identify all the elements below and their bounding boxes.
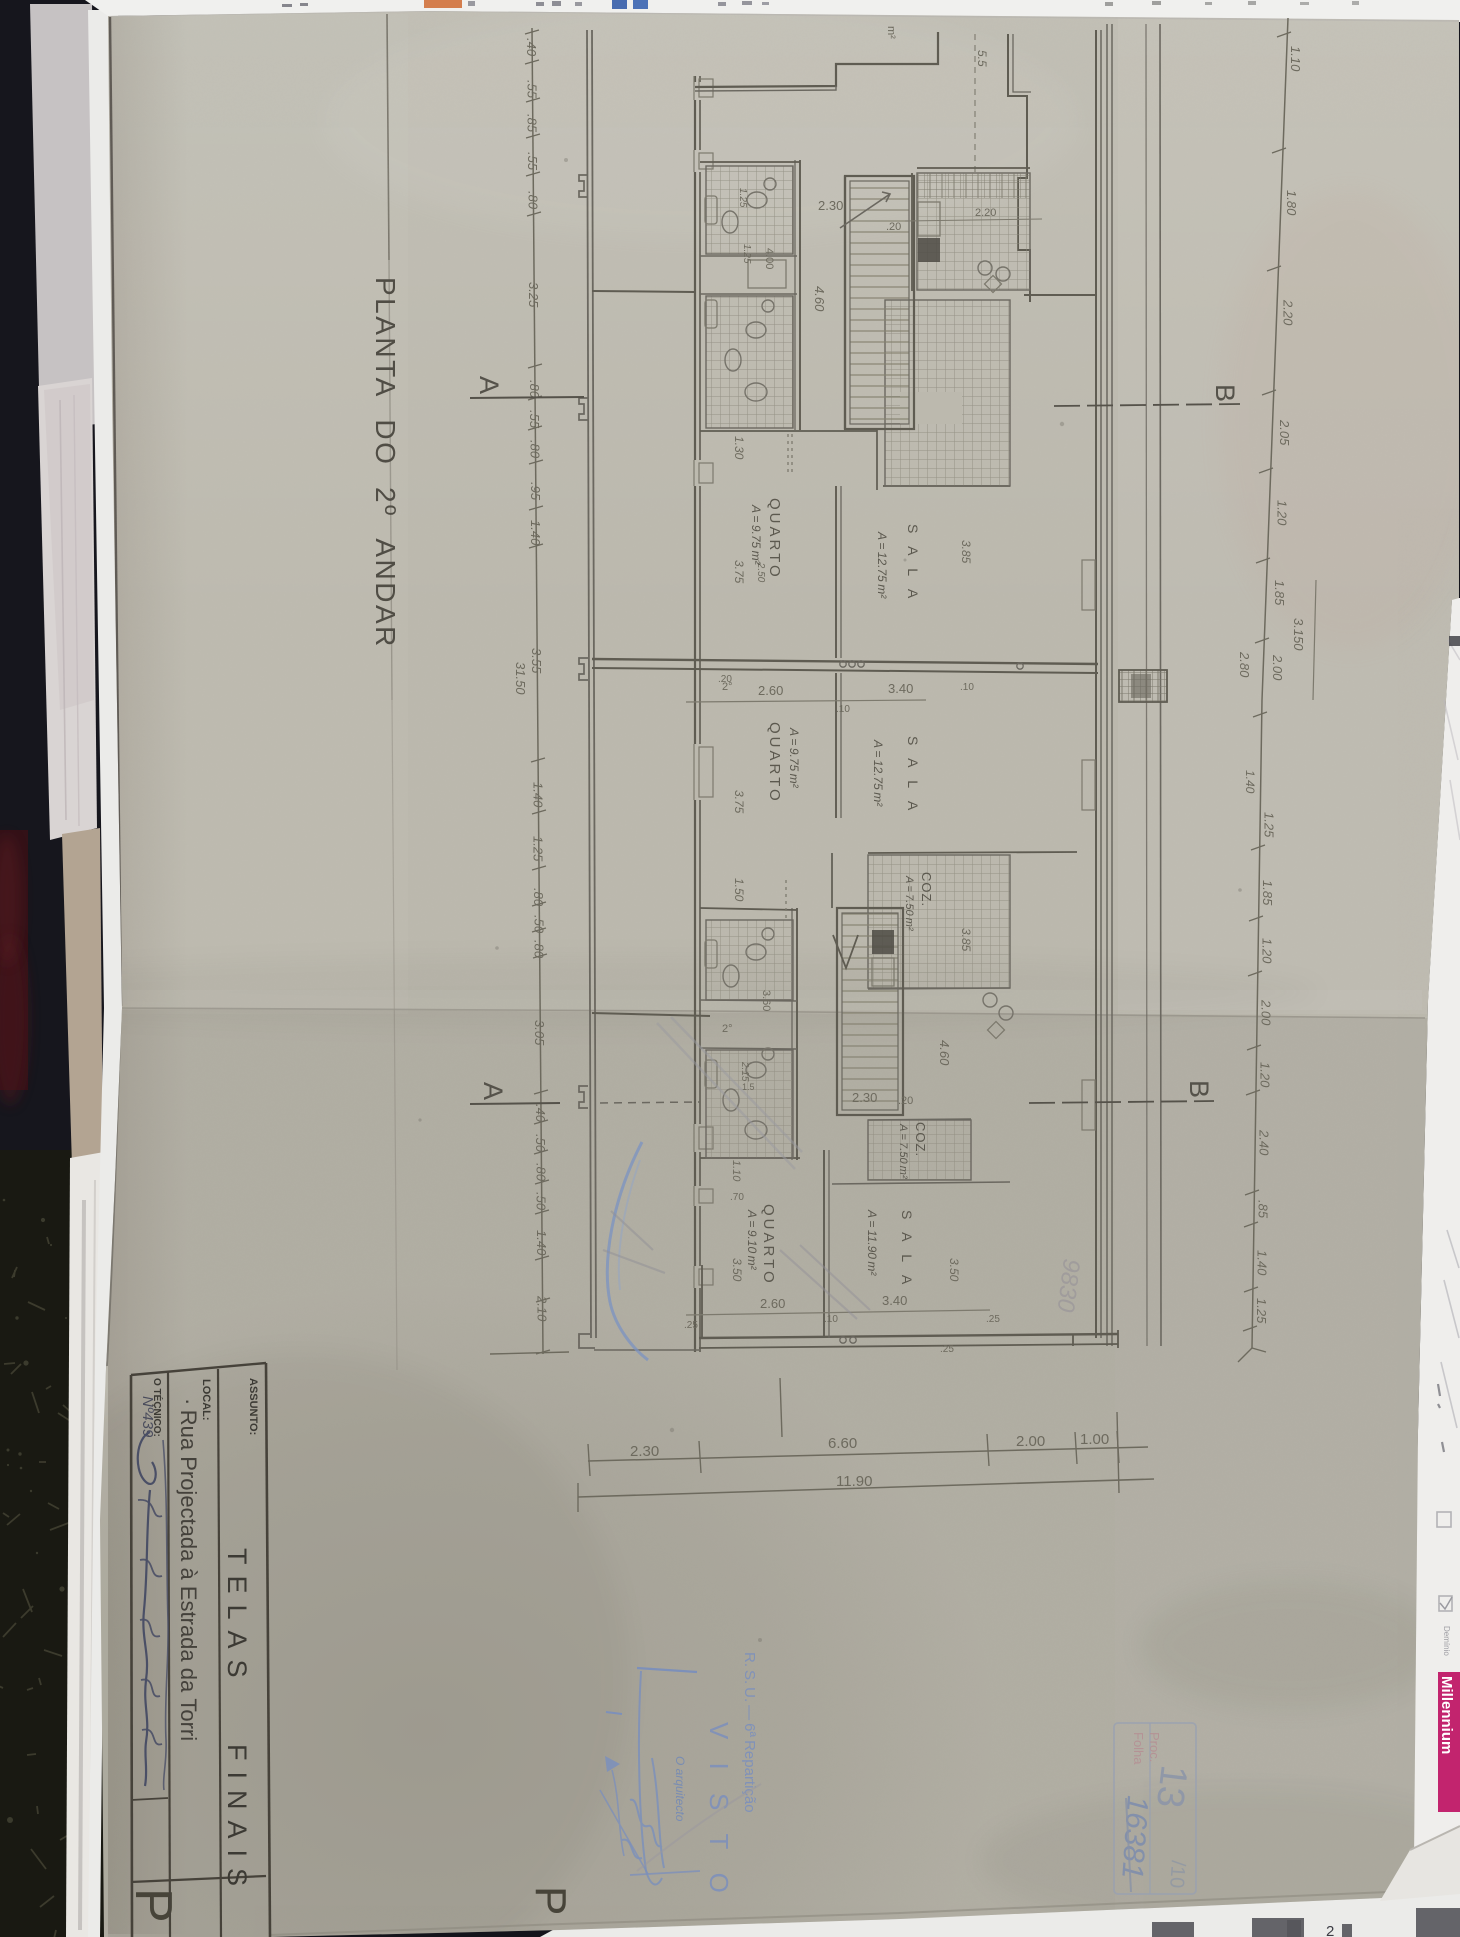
svg-text:3.150: 3.150 <box>1291 618 1306 651</box>
svg-text:PLANTA DO 2º ANDAR: PLANTA DO 2º ANDAR <box>370 277 401 649</box>
svg-text:3.40: 3.40 <box>888 681 913 696</box>
svg-text:A = 11.90 m²: A = 11.90 m² <box>865 1209 879 1276</box>
svg-text:31.50: 31.50 <box>513 662 528 695</box>
svg-text:2.05: 2.05 <box>1277 419 1292 446</box>
svg-text:3.50: 3.50 <box>730 1258 744 1282</box>
svg-text:1.40: 1.40 <box>1243 770 1257 794</box>
svg-text:1.10: 1.10 <box>1288 46 1303 72</box>
svg-text:2.00: 2.00 <box>1270 654 1285 681</box>
svg-text:2.30: 2.30 <box>818 198 843 213</box>
svg-text:.80: .80 <box>527 380 542 399</box>
svg-text:1.80: 1.80 <box>1284 190 1299 216</box>
svg-text:.85: .85 <box>525 114 540 133</box>
svg-text:.10: .10 <box>836 704 850 715</box>
svg-text:1.40: 1.40 <box>528 520 543 546</box>
svg-text:1.40: 1.40 <box>530 782 545 808</box>
svg-text:3.50: 3.50 <box>947 1258 961 1282</box>
svg-text:3.75: 3.75 <box>732 790 746 814</box>
svg-text:2: 2 <box>1326 1923 1334 1937</box>
svg-text:1.00: 1.00 <box>1080 1431 1109 1448</box>
svg-text:13: 13 <box>1148 1763 1195 1810</box>
svg-text:1.20: 1.20 <box>1275 500 1290 526</box>
svg-text:4.60: 4.60 <box>937 1040 952 1066</box>
svg-text:.50: .50 <box>533 1134 548 1153</box>
svg-text:.80: .80 <box>533 1163 548 1182</box>
svg-text:3.85: 3.85 <box>959 540 973 564</box>
svg-text:A = 7.50 m²: A = 7.50 m² <box>897 1123 909 1179</box>
svg-text:Demínio: Demínio <box>1442 1626 1451 1656</box>
svg-text:B: B <box>1184 1080 1214 1098</box>
svg-text:2.40: 2.40 <box>1256 1129 1271 1156</box>
svg-text:2.60: 2.60 <box>758 683 783 698</box>
svg-text:.20: .20 <box>886 221 901 233</box>
svg-text:Proc.: Proc. <box>1147 1732 1162 1762</box>
svg-text:3.60: 3.60 <box>760 990 772 1011</box>
svg-text:A = 9.10 m²: A = 9.10 m² <box>745 1209 759 1271</box>
svg-text:A = 12.75 m²: A = 12.75 m² <box>871 739 885 807</box>
svg-text:.50: .50 <box>534 1192 549 1211</box>
svg-text:.25: .25 <box>684 1320 698 1331</box>
svg-text:1.25: 1.25 <box>1261 812 1276 838</box>
svg-text:1.25: 1.25 <box>741 244 752 264</box>
svg-text:.55: .55 <box>527 410 542 429</box>
svg-text:.80: .80 <box>525 191 540 210</box>
svg-text:2.15: 2.15 <box>739 1061 750 1082</box>
svg-text:3.05: 3.05 <box>532 1020 547 1046</box>
svg-text:4.00: 4.00 <box>763 248 775 269</box>
svg-text:.85: .85 <box>1255 1200 1270 1219</box>
svg-text:1.85: 1.85 <box>1260 880 1275 906</box>
svg-text:11.90: 11.90 <box>836 1473 872 1490</box>
svg-text:TELAS FINAIS: TELAS FINAIS <box>222 1548 252 1897</box>
svg-text:S A L A: S A L A <box>905 736 921 815</box>
svg-text:QUARTO: QUARTO <box>760 1204 777 1286</box>
svg-text:A = 9.75 m²: A = 9.75 m² <box>749 504 763 566</box>
svg-text:Folha: Folha <box>1131 1732 1146 1765</box>
svg-text:6.60: 6.60 <box>828 1435 857 1452</box>
svg-text:/10: /10 <box>1165 1860 1189 1889</box>
svg-text:COZ.: COZ. <box>913 1122 928 1157</box>
svg-text:2°: 2° <box>722 681 733 693</box>
svg-text:.40: .40 <box>524 38 539 57</box>
svg-text:.95: .95 <box>528 482 543 501</box>
svg-text:R. S. U. — 6ª Repartição: R. S. U. — 6ª Repartição <box>741 1652 758 1813</box>
svg-text:2.30: 2.30 <box>852 1090 877 1105</box>
svg-text:1.10: 1.10 <box>730 1160 742 1182</box>
svg-text:2.00: 2.00 <box>1258 999 1273 1026</box>
svg-text:3.40: 3.40 <box>882 1293 907 1308</box>
svg-text:1.30: 1.30 <box>732 436 746 460</box>
svg-text:.55: .55 <box>524 80 539 99</box>
svg-text:4.60: 4.60 <box>812 286 827 312</box>
svg-text:Millennium: Millennium <box>1438 1676 1455 1754</box>
svg-text:QUARTO: QUARTO <box>766 722 783 804</box>
svg-text:QUARTO: QUARTO <box>766 498 783 580</box>
svg-text:m²: m² <box>885 26 897 39</box>
svg-text:1.85: 1.85 <box>1272 580 1287 606</box>
svg-text:A = 12.75 m²: A = 12.75 m² <box>875 531 889 599</box>
svg-text:.50: .50 <box>531 915 546 934</box>
svg-text:B: B <box>1210 384 1240 402</box>
svg-text:.25: .25 <box>986 1314 1000 1325</box>
svg-text:3.25: 3.25 <box>526 282 541 308</box>
svg-text:.80: .80 <box>532 940 547 959</box>
svg-text:A: A <box>474 376 504 394</box>
svg-text:.25: .25 <box>940 1344 954 1355</box>
svg-text:2.80: 2.80 <box>1237 651 1252 678</box>
svg-text:1.20: 1.20 <box>1257 1062 1272 1088</box>
svg-text:.55: .55 <box>525 152 540 171</box>
svg-text:A = 7.50 m²: A = 7.50 m² <box>903 875 915 931</box>
svg-text:3.85: 3.85 <box>959 928 973 952</box>
svg-text:1.40: 1.40 <box>1255 1250 1270 1276</box>
svg-text:1.50: 1.50 <box>732 878 746 902</box>
svg-text:A = 9.75 m²: A = 9.75 m² <box>787 727 801 789</box>
svg-text:2.60: 2.60 <box>760 1296 785 1311</box>
svg-text:2.00: 2.00 <box>1016 1433 1045 1450</box>
svg-text:V I S T O: V I S T O <box>704 1722 734 1902</box>
svg-text:2.30: 2.30 <box>630 1443 659 1460</box>
svg-text:2.20: 2.20 <box>975 207 996 219</box>
svg-text:Nº439: Nº439 <box>139 1396 156 1438</box>
svg-text:O arquitecto: O arquitecto <box>673 1756 687 1822</box>
svg-text:COZ.: COZ. <box>919 872 934 907</box>
svg-text:.20: .20 <box>898 1095 913 1107</box>
svg-text:.70: .70 <box>730 1192 744 1203</box>
svg-text:S A L A: S A L A <box>905 524 921 603</box>
svg-text:.40: .40 <box>533 1104 548 1123</box>
svg-text:1.20: 1.20 <box>1259 938 1274 964</box>
svg-text:1.25: 1.25 <box>1254 1298 1269 1324</box>
svg-text:2.10: 2.10 <box>535 1295 550 1322</box>
svg-text:1.25: 1.25 <box>737 188 748 208</box>
svg-text:ASSUNTO:: ASSUNTO: <box>247 1378 259 1435</box>
svg-text:· Rua Projectada à Estrada da: · Rua Projectada à Estrada da Torri <box>176 1398 201 1741</box>
svg-text:3.75: 3.75 <box>732 560 746 584</box>
svg-text:.80: .80 <box>527 440 542 459</box>
svg-text:S A L A: S A L A <box>899 1210 915 1289</box>
svg-text:1.25: 1.25 <box>531 836 546 862</box>
svg-text:5.5: 5.5 <box>975 50 989 67</box>
svg-text:1.40: 1.40 <box>534 1230 549 1256</box>
svg-text:.80: .80 <box>531 888 546 907</box>
svg-text:16381: 16381 <box>1115 1795 1154 1881</box>
svg-text:3.55: 3.55 <box>529 648 544 674</box>
svg-text:A: A <box>478 1082 508 1100</box>
svg-text:.10: .10 <box>824 1314 838 1325</box>
svg-text:.10: .10 <box>960 682 974 693</box>
svg-text:2.20: 2.20 <box>1281 299 1296 326</box>
svg-text:P L: P L <box>526 1886 575 1937</box>
svg-text:2°: 2° <box>722 1023 733 1035</box>
